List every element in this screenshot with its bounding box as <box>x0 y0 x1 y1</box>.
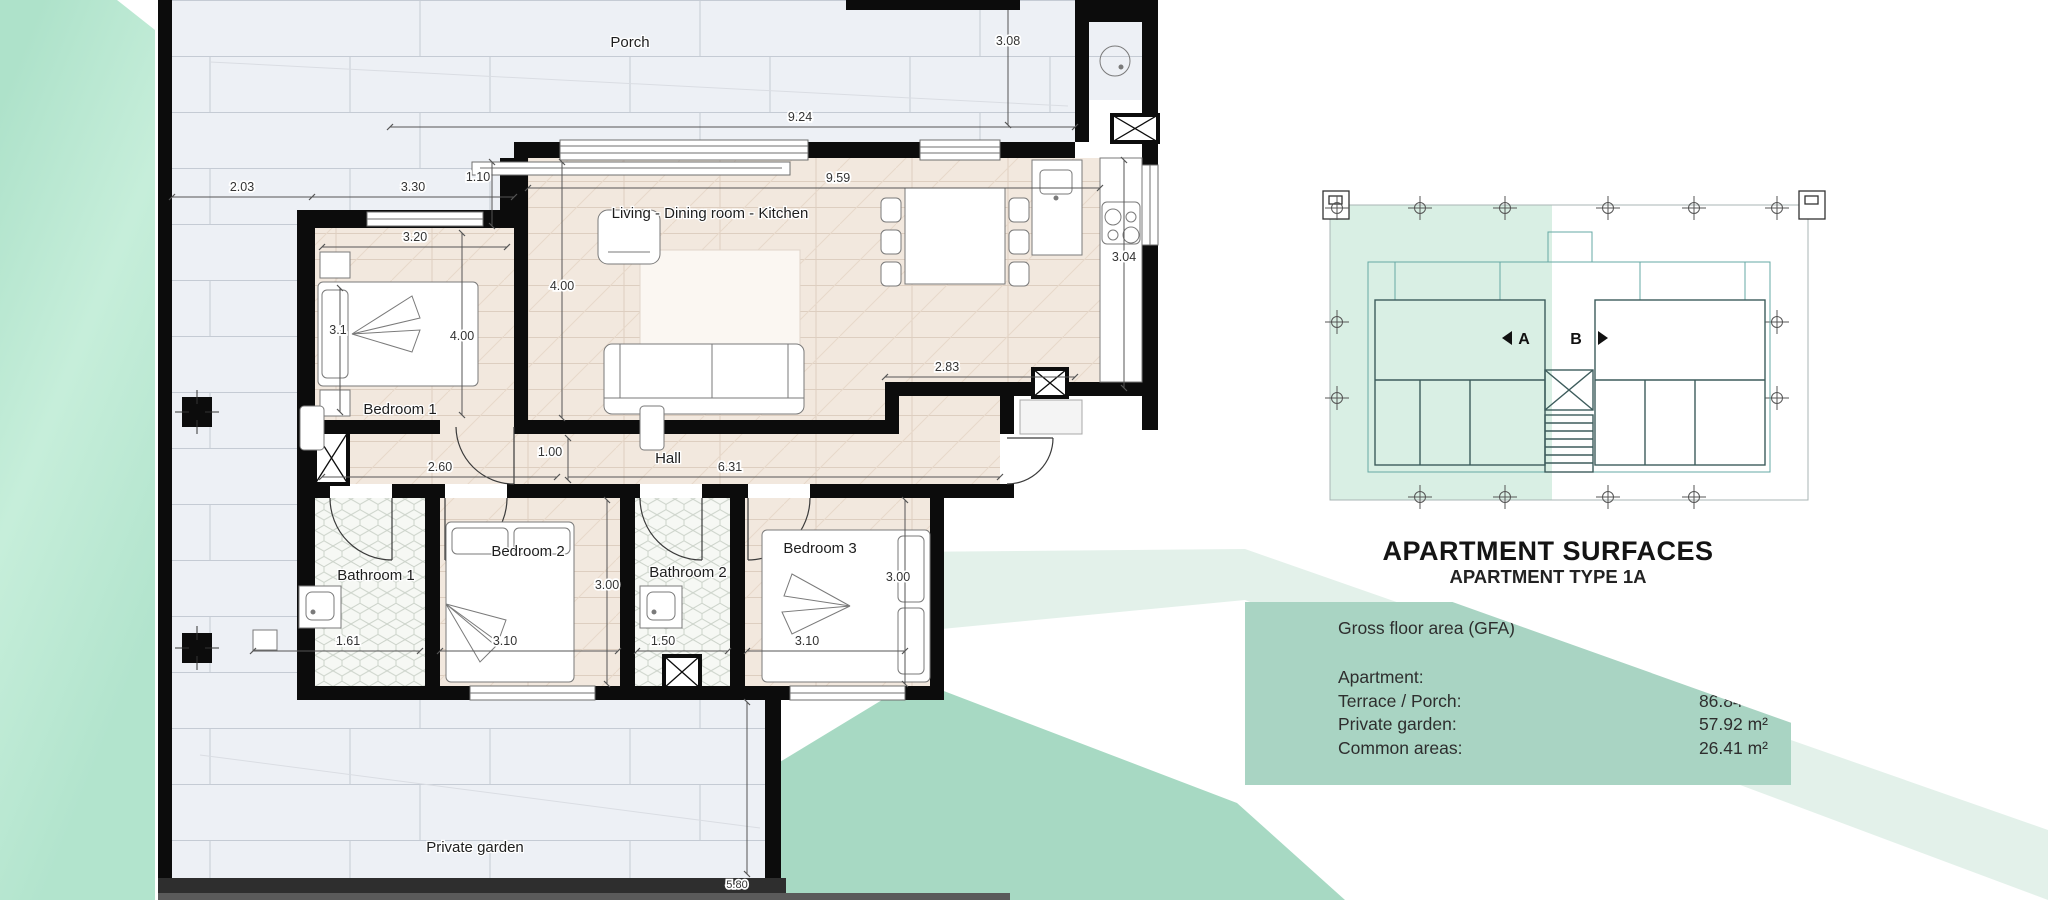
toilet-2 <box>640 406 664 450</box>
surface-row-label: Common areas: <box>1338 737 1463 761</box>
dim-bedroom1-side: 3.1 <box>329 323 346 337</box>
key-plan-unit-b-label: B <box>1570 331 1582 348</box>
dim-hall-length: 6.31 <box>718 460 742 474</box>
dim-kitchen-terrace: 2.83 <box>935 360 959 374</box>
dim-bedroom3-depth: 3.00 <box>886 570 910 584</box>
key-plan-unit-a-label: A <box>1518 331 1530 348</box>
dim-hall-left: 2.60 <box>428 460 452 474</box>
key-plan: A B <box>1323 191 1825 509</box>
room-label-bathroom1: Bathroom 1 <box>337 567 415 584</box>
room-label-hall: Hall <box>655 450 681 467</box>
dining-table <box>905 188 1005 284</box>
dim-bedroom1-depth: 4.00 <box>450 329 474 343</box>
room-label-bedroom2: Bedroom 2 <box>491 543 564 560</box>
surface-row-label: Terrace / Porch: <box>1338 690 1462 714</box>
dim-kitchen-depth: 3.04 <box>1112 250 1136 264</box>
floor-plan-page: 2.03 3.30 1.10 9.24 3.08 9.59 4.00 3.20 … <box>0 0 2048 900</box>
dim-bathroom2-width: 1.50 <box>651 634 675 648</box>
dim-terrace-width: 2.03 <box>230 180 254 194</box>
dim-living-depth: 4.00 <box>550 279 574 293</box>
surface-row-value: 57.92 m² <box>1699 713 1768 737</box>
dim-step: 1.10 <box>466 170 490 184</box>
surfaces-title: APARTMENT SURFACES <box>1278 536 1818 567</box>
room-label-living: Living - Dining room - Kitchen <box>612 205 809 222</box>
dim-porch-depth: 3.08 <box>996 34 1020 48</box>
surface-row-value: 26.41 m² <box>1699 737 1768 761</box>
kitchen-counter <box>1100 158 1142 382</box>
surfaces-subtitle: APARTMENT TYPE 1A <box>1278 566 1818 588</box>
dim-bedroom1-width: 3.20 <box>403 230 427 244</box>
dim-garden-depth: 5.80 <box>726 879 747 891</box>
dim-hall-width: 1.00 <box>538 445 562 459</box>
room-label-garden: Private garden <box>426 839 524 856</box>
sofa <box>604 344 804 414</box>
dim-bedroom3-width: 3.10 <box>795 634 819 648</box>
toilet-1 <box>300 406 324 450</box>
surface-row-label: Private garden: <box>1338 713 1457 737</box>
dim-bedroom1-front: 3.30 <box>401 180 425 194</box>
surface-row-common: Common areas: 26.41 m² <box>1338 737 1768 761</box>
surface-row-terrace: Terrace / Porch: 86.84 m² <box>1338 690 1768 714</box>
dim-porch-width: 9.24 <box>788 110 812 124</box>
room-label-bathroom2: Bathroom 2 <box>649 564 727 581</box>
dim-living-length: 9.59 <box>826 171 850 185</box>
room-label-porch: Porch <box>610 34 649 51</box>
surface-row-garden: Private garden: 57.92 m² <box>1338 713 1768 737</box>
room-label-bedroom3: Bedroom 3 <box>783 540 856 557</box>
dim-bedroom2-depth: 3.00 <box>595 578 619 592</box>
room-label-bedroom1: Bedroom 1 <box>363 401 436 418</box>
surface-row-label: Apartment: <box>1338 666 1424 690</box>
dim-bathroom1-width: 1.61 <box>336 634 360 648</box>
dim-bedroom2-width: 3.10 <box>493 634 517 648</box>
